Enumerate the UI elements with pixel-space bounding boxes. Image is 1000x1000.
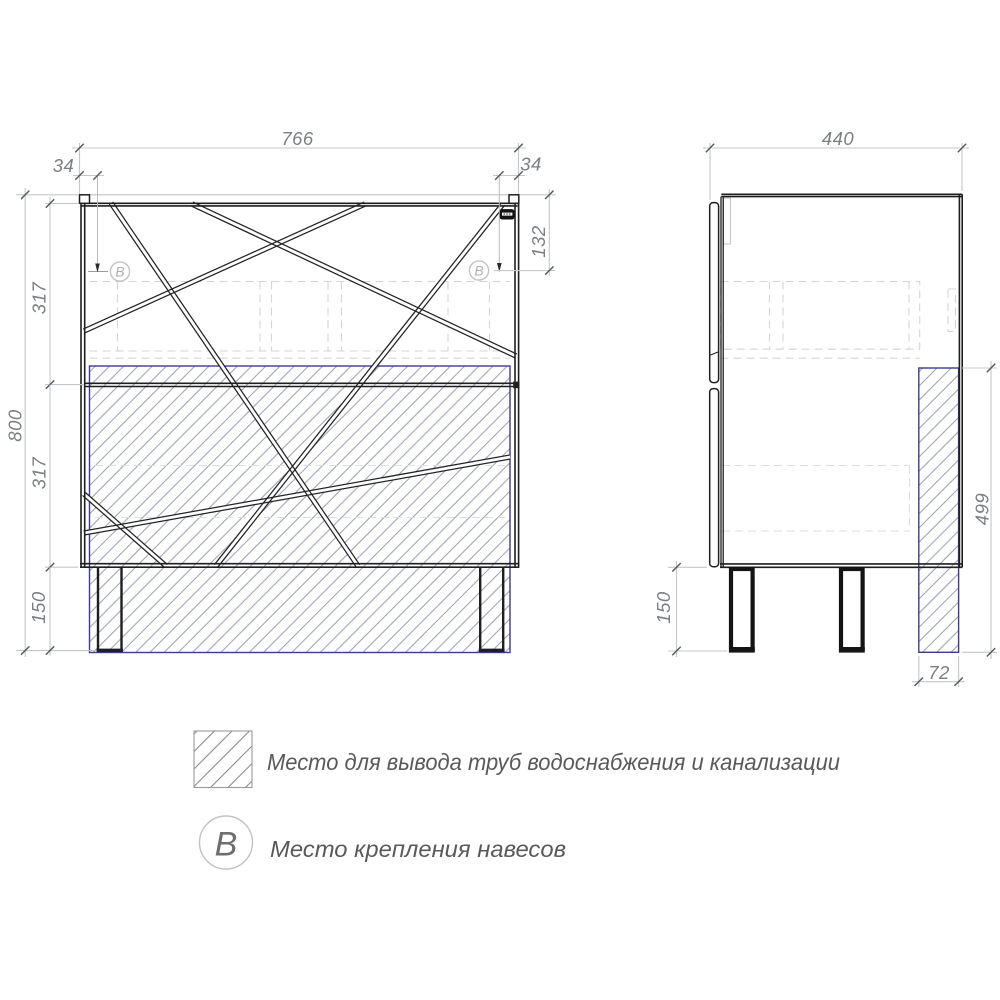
svg-text:В: В xyxy=(215,826,238,864)
svg-text:440: 440 xyxy=(822,128,855,149)
svg-text:317: 317 xyxy=(29,282,50,315)
svg-text:150: 150 xyxy=(28,591,49,624)
svg-text:132: 132 xyxy=(528,225,549,258)
svg-text:72: 72 xyxy=(928,662,950,683)
svg-text:В: В xyxy=(115,264,124,280)
svg-text:В: В xyxy=(474,263,483,279)
svg-text:800: 800 xyxy=(5,409,26,442)
svg-text:Место крепления навесов: Место крепления навесов xyxy=(270,836,566,862)
svg-text:317: 317 xyxy=(29,457,50,490)
svg-text:766: 766 xyxy=(281,128,314,149)
svg-text:34: 34 xyxy=(53,155,75,176)
svg-text:Место для вывода труб водоснаб: Место для вывода труб водоснабжения и ка… xyxy=(267,749,840,775)
svg-text:150: 150 xyxy=(653,591,674,624)
svg-text:34: 34 xyxy=(520,154,542,175)
svg-text:499: 499 xyxy=(972,493,993,525)
